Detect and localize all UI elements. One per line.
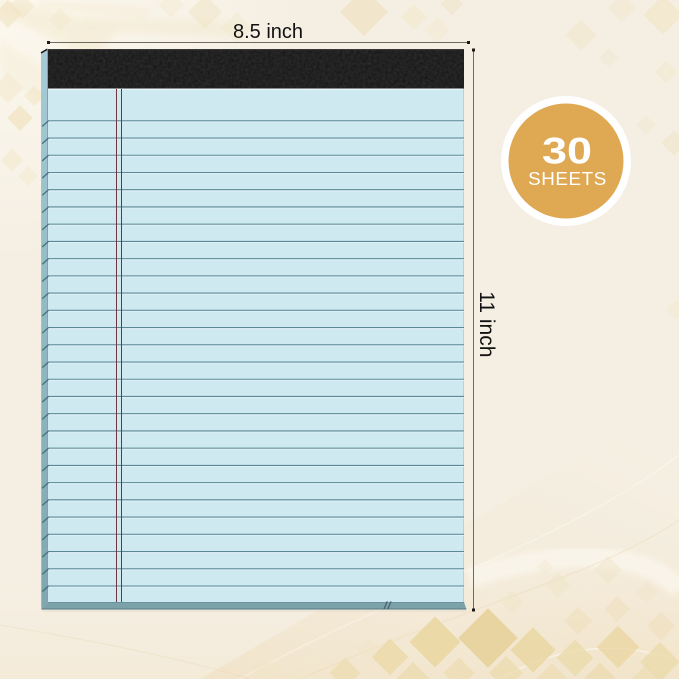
svg-text:8.5 inch: 8.5 inch: [233, 21, 303, 43]
svg-text:30: 30: [542, 130, 592, 172]
svg-text:SHEETS: SHEETS: [528, 168, 607, 189]
svg-text:11 inch: 11 inch: [475, 291, 498, 357]
